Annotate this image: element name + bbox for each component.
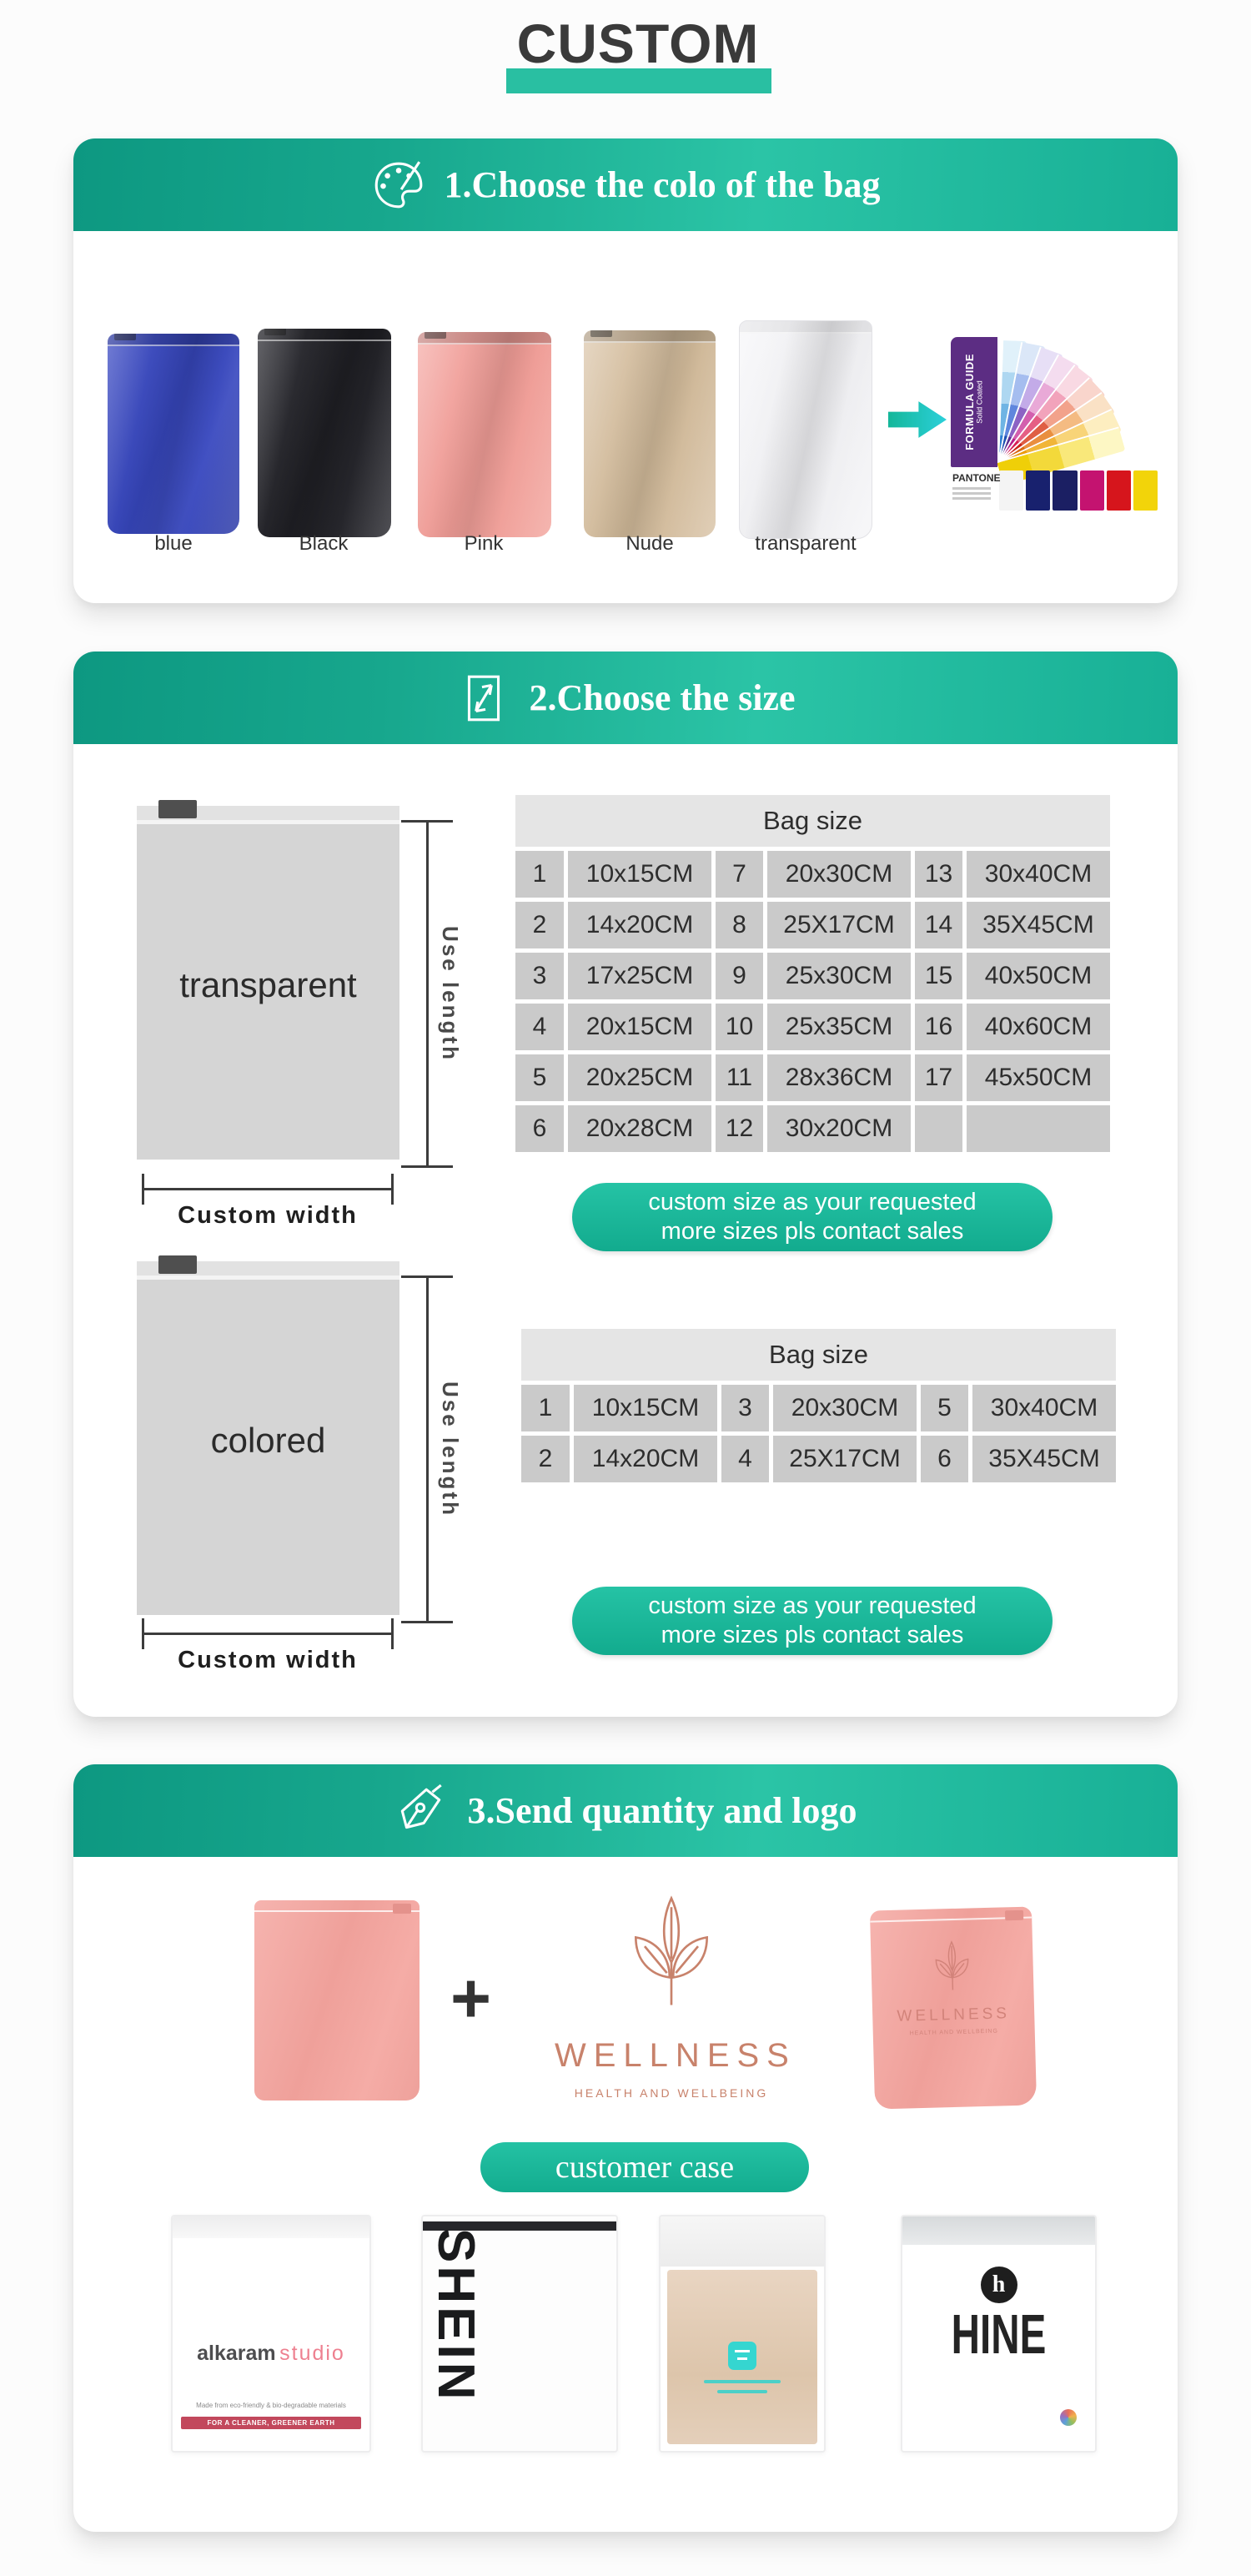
bag-frost-strip (902, 2216, 1095, 2245)
resize-icon (456, 671, 511, 726)
size-table-cell: 9 (716, 953, 763, 999)
bag-frost-strip (661, 2216, 824, 2267)
leaf-logo-icon (926, 1938, 979, 2000)
custom-width-label: Custom width (134, 1647, 401, 1674)
bag-sheen (418, 332, 551, 537)
pill-line1: custom size as your requested (648, 1592, 976, 1621)
size-table-title: Bag size (521, 1329, 1116, 1381)
customer-case-hine: h HINE (901, 2215, 1097, 2453)
custom-product-page: CUSTOM 1.Choose the colo of the bag (0, 0, 1251, 2576)
page-title: CUSTOM (0, 12, 1251, 103)
section2-header: 2.Choose the size (73, 652, 1178, 744)
length-dimension-line (426, 1275, 429, 1623)
alkaram-stripe: FOR A CLEANER, GREENER EARTH (181, 2417, 361, 2429)
bag-sheen (108, 334, 239, 534)
diagram-transparent-bag: transparent (137, 806, 399, 1160)
bag-label-transparent: transparent (735, 532, 877, 556)
pantone-base-swatches (999, 470, 1158, 511)
size-table-cell (915, 1105, 962, 1152)
palette-icon (370, 158, 425, 213)
alkaram-logo-bold: alkaram (197, 2342, 276, 2365)
size-table-cell: 4 (721, 1436, 769, 1482)
diagram-colored-label: colored (137, 1421, 399, 1461)
diagram-transparent-label: transparent (137, 965, 399, 1005)
hine-monogram: h (981, 2267, 1017, 2303)
cyan-text-line (704, 2380, 781, 2383)
size-table-cell: 10x15CM (574, 1385, 717, 1431)
size-table-cell: 30x40CM (972, 1385, 1116, 1431)
size-table-cell: 20x15CM (568, 1004, 711, 1050)
size-table-cell: 20x30CM (767, 851, 911, 898)
size-table-cell: 17x25CM (568, 953, 711, 999)
pill-line2: more sizes pls contact sales (661, 1217, 964, 1246)
size-table-cell: 40x50CM (967, 953, 1110, 999)
custom-size-pill[interactable]: custom size as your requested more sizes… (572, 1183, 1053, 1251)
size-table-cell: 45x50CM (967, 1054, 1110, 1101)
size-table-cell: 20x25CM (568, 1054, 711, 1101)
size-table-cell: 35X45CM (967, 902, 1110, 948)
size-table-cell: 8 (716, 902, 763, 948)
plus-sign: + (450, 1958, 491, 2039)
section2-title: 2.Choose the size (530, 677, 796, 719)
size-table-cell: 25x35CM (767, 1004, 911, 1050)
custom-width-label: Custom width (134, 1202, 401, 1230)
size-table-cell: 6 (515, 1105, 564, 1152)
size-table-cell: 3 (515, 953, 564, 999)
section3-header: 3.Send quantity and logo (73, 1764, 1178, 1857)
bag-label-pink: Pink (413, 532, 555, 556)
size-table-cell: 5 (515, 1054, 564, 1101)
use-length-label: Use length (437, 1381, 463, 1517)
section3-title: 3.Send quantity and logo (467, 1789, 857, 1832)
size-table-cell: 17 (915, 1054, 962, 1101)
size-table-cell: 13 (915, 851, 962, 898)
size-table-cell: 14 (915, 902, 962, 948)
bag-pink (418, 332, 551, 537)
width-dimension-line (142, 1188, 394, 1190)
alkaram-logo: alkaram studio (173, 2342, 369, 2366)
size-table-cell: 35X45CM (972, 1436, 1116, 1482)
bag-sheen (740, 321, 872, 538)
wellness-logo-tagline: HEALTH AND WELLBEING (555, 2086, 788, 2100)
pantone-spine-title: FORMULA GUIDE (964, 354, 976, 450)
size-table-cell: 5 (921, 1385, 968, 1431)
size-table-cell: 25X17CM (767, 902, 911, 948)
pantone-spine: FORMULA GUIDE Solid Coated (951, 337, 997, 467)
customer-case-shein: SHEIN (421, 2215, 618, 2453)
size-table-cell: 2 (515, 902, 564, 948)
pill-line2: more sizes pls contact sales (661, 1621, 964, 1650)
bag-label-nude: Nude (579, 532, 721, 556)
leaf-logo-icon (613, 1891, 730, 2025)
section-quantity-logo: 3.Send quantity and logo + WELLNESS HEAL… (73, 1764, 1178, 2532)
size-table-cell: 11 (716, 1054, 763, 1101)
alkaram-logo-light: studio (279, 2342, 345, 2365)
section1-header: 1.Choose the colo of the bag (73, 138, 1178, 231)
hine-color-dot-icon (1060, 2409, 1077, 2426)
pantone-brand: PANTONE (952, 472, 1001, 484)
wellness-logo-name: WELLNESS (555, 2037, 788, 2075)
diagram-slider (158, 800, 197, 818)
size-table-cell: 25X17CM (773, 1436, 917, 1482)
pantone-formula-guide: FORMULA GUIDE Solid Coated PANTONE (951, 337, 1168, 546)
wellness-logo: WELLNESS HEALTH AND WELLBEING (555, 1891, 788, 2100)
size-table-cell: 2 (521, 1436, 570, 1482)
size-table-cell: 4 (515, 1004, 564, 1050)
size-table-cell: 20x28CM (568, 1105, 711, 1152)
pen-nib-icon (394, 1784, 449, 1839)
bag-label-blue: blue (103, 532, 244, 556)
bag-label-black: Black (253, 532, 394, 556)
size-table-cell: 14x20CM (568, 902, 711, 948)
size-table-cell: 6 (921, 1436, 968, 1482)
section-choose-color: 1.Choose the colo of the bag bl (73, 138, 1178, 603)
size-table-cell: 1 (515, 851, 564, 898)
bag-sheen (584, 330, 716, 537)
size-table-cell: 40x60CM (967, 1004, 1110, 1050)
bag-blue (108, 334, 239, 534)
customer-case-pill[interactable]: customer case (480, 2142, 809, 2192)
shein-logo: SHEIN (426, 2228, 485, 2450)
pill-line1: custom size as your requested (648, 1188, 976, 1217)
size-table-cell: 14x20CM (574, 1436, 717, 1482)
customer-case-label: customer case (555, 2149, 734, 2186)
size-table-cell: 16 (915, 1004, 962, 1050)
size-table-cell: 10 (716, 1004, 763, 1050)
size-table-cell: 30x40CM (967, 851, 1110, 898)
size-table-cell (967, 1105, 1110, 1152)
pantone-fineprint (952, 487, 991, 502)
page-title-text: CUSTOM (0, 12, 1251, 75)
bag-tab (1005, 1910, 1023, 1921)
bag-tab (393, 1904, 411, 1914)
size-table-cell: 1 (521, 1385, 570, 1431)
pink-bag-printed: WELLNESS HEALTH AND WELLBEING (870, 1907, 1037, 2110)
size-table-large: Bag size 110x15CM720x30CM1330x40CM214x20… (515, 795, 1113, 1152)
wellness-print-name: WELLNESS (872, 2004, 1035, 2026)
size-table-cell: 20x30CM (773, 1385, 917, 1431)
size-table-cell: 15 (915, 953, 962, 999)
pink-bag-plain (254, 1900, 420, 2101)
length-dimension-line (426, 820, 429, 1168)
size-table-cell: 7 (716, 851, 763, 898)
wellness-print-tagline: HEALTH AND WELLBEING (873, 2027, 1035, 2037)
section1-title: 1.Choose the colo of the bag (444, 164, 880, 206)
section-choose-size: 2.Choose the size transparent Use length… (73, 652, 1178, 1717)
size-table-cell: 10x15CM (568, 851, 711, 898)
alkaram-eco-line: Made from eco-friendly & bio-degradable … (173, 2402, 369, 2409)
use-length-label: Use length (437, 926, 463, 1062)
pantone-spine-subtitle: Solid Coated (976, 354, 984, 450)
customer-case-nude (659, 2215, 826, 2453)
size-table-cell: 12 (716, 1105, 763, 1152)
bag-sheen (258, 329, 391, 537)
cyan-square-logo (728, 2342, 756, 2370)
diagram-colored-bag: colored (137, 1261, 399, 1615)
wellness-logo-print: WELLNESS HEALTH AND WELLBEING (871, 1936, 1035, 2037)
width-dimension-line (142, 1633, 394, 1635)
bag-nude (584, 330, 716, 537)
size-table-title: Bag size (515, 795, 1110, 847)
bag-frost-strip (173, 2216, 369, 2238)
size-table-cell: 28x36CM (767, 1054, 911, 1101)
bag-black (258, 329, 391, 537)
size-table-cell: 30x20CM (767, 1105, 911, 1152)
size-table-cell: 3 (721, 1385, 769, 1431)
cyan-text-line (717, 2390, 767, 2393)
custom-size-pill[interactable]: custom size as your requested more sizes… (572, 1587, 1053, 1655)
diagram-slider (158, 1255, 197, 1274)
size-table-small: Bag size 110x15CM320x30CM530x40CM214x20C… (521, 1329, 1118, 1482)
arrow-right-icon (888, 398, 947, 441)
bag-transparent (739, 320, 872, 539)
hine-logo: HINE (920, 2302, 1078, 2367)
customer-case-alkaram: alkaram studio Made from eco-friendly & … (171, 2215, 371, 2453)
size-table-cell: 25x30CM (767, 953, 911, 999)
